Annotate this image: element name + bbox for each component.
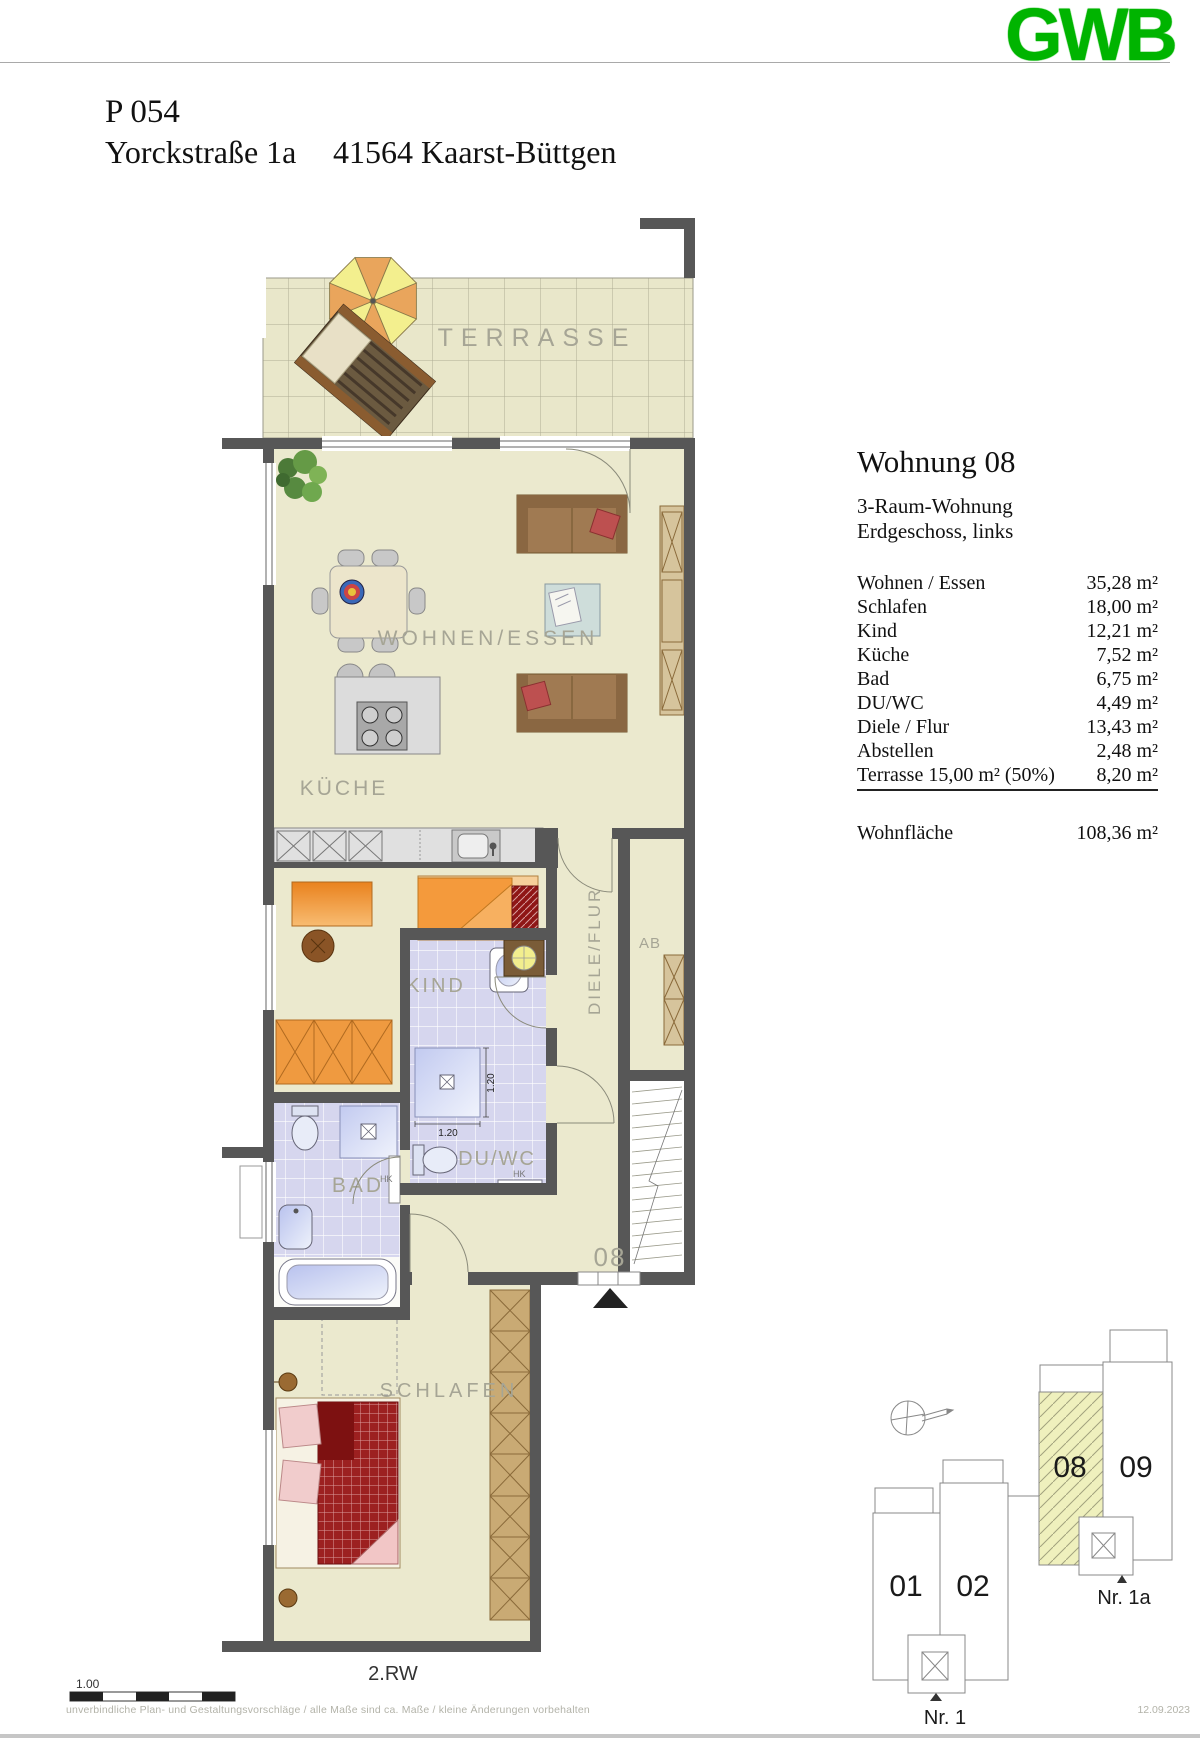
room-label: Diele / Flur	[857, 715, 949, 739]
room-area: 12,21 m²	[1086, 619, 1158, 643]
room-area: 35,28 m²	[1086, 571, 1158, 595]
shower-wc-label: DU/WC	[458, 1148, 536, 1170]
pillow-icon	[279, 1404, 321, 1448]
living-label: WOHNEN/ESSEN	[378, 627, 599, 650]
door-gap	[546, 1066, 557, 1123]
hallway-label: DIELE/FLUR	[585, 887, 604, 1015]
total-area: 108,36 m²	[1076, 822, 1158, 845]
lamp-icon	[279, 1373, 297, 1391]
kitchen-counter	[274, 828, 543, 864]
bottom-divider	[0, 1734, 1200, 1738]
table-row: Wohnen / Essen35,28 m²	[857, 571, 1158, 595]
door-gap	[412, 1272, 468, 1285]
room-label: Küche	[857, 643, 909, 667]
entry-number-label: 08	[594, 1242, 627, 1272]
project-code: P 054	[105, 94, 180, 131]
storage-cabinet	[664, 955, 684, 1045]
sofa-bottom	[517, 674, 627, 732]
table-row: Diele / Flur13,43 m²	[857, 715, 1158, 739]
table-row: Bad6,75 m²	[857, 667, 1158, 691]
shower-width-dim: 1.20	[438, 1128, 458, 1139]
wc-radiator-label: HK	[513, 1169, 526, 1179]
room-area: 6,75 m²	[1096, 667, 1158, 691]
street-address: Yorckstraße 1a	[105, 134, 296, 171]
total-area-row: Wohnfläche 108,36 m²	[857, 822, 1158, 845]
header-divider	[0, 62, 1170, 63]
footer-disclaimer: unverbindliche Plan- und Gestaltungsvors…	[66, 1704, 590, 1716]
door-gap	[546, 975, 557, 1028]
floorplan-drawing: TERRASSE BAD HK 1.2	[0, 0, 1200, 1742]
pillow-icon	[279, 1460, 321, 1504]
bath-radiator-label: HK	[380, 1174, 393, 1184]
apartment-type: 3-Raum-Wohnung	[857, 494, 1013, 519]
table-row: Schlafen18,00 m²	[857, 595, 1158, 619]
total-label: Wohnfläche	[857, 822, 953, 845]
kitchen-label: KÜCHE	[300, 777, 389, 800]
child-label: KIND	[406, 975, 466, 997]
room-label: Terrasse 15,00 m² (50%)	[857, 763, 1055, 789]
drainage-label: 2.RW	[368, 1663, 418, 1685]
storage-label: AB	[639, 935, 661, 952]
apartment-subtitle: 3-Raum-Wohnung Erdgeschoss, links	[857, 494, 1013, 544]
desk-icon	[292, 882, 372, 926]
shower-depth-dim: 1.20	[486, 1073, 497, 1093]
table-row: Kind12,21 m²	[857, 619, 1158, 643]
door-gap	[400, 1150, 410, 1205]
kitchen-island	[335, 664, 440, 754]
child-wardrobe	[276, 1020, 392, 1084]
room-label: Wohnen / Essen	[857, 571, 985, 595]
table-row: Abstellen2,48 m²	[857, 739, 1158, 763]
table-row-terrace: Terrasse 15,00 m² (50%)8,20 m²	[857, 763, 1158, 791]
room-area: 2,48 m²	[1096, 739, 1158, 763]
room-label: Bad	[857, 667, 889, 691]
bedroom-label: SCHLAFEN	[380, 1380, 519, 1402]
room-area: 8,20 m²	[1096, 763, 1158, 789]
apartment-title: Wohnung 08	[857, 444, 1016, 480]
room-area: 18,00 m²	[1086, 595, 1158, 619]
site-plan: 01 02 08 09 Nr. 1a Nr. 1	[873, 1330, 1172, 1729]
room-label: Kind	[857, 619, 897, 643]
building-09-label: 09	[1119, 1451, 1152, 1484]
room-label: Schlafen	[857, 595, 927, 619]
room-label: DU/WC	[857, 691, 924, 715]
terrace-notch	[256, 276, 266, 338]
sofa-top	[517, 495, 627, 553]
floor-location: Erdgeschoss, links	[857, 519, 1013, 544]
table-row: Küche7,52 m²	[857, 643, 1158, 667]
vestibule-floor	[400, 1195, 618, 1272]
bath-label: BAD	[332, 1174, 384, 1197]
city-address: 41564 Kaarst-Büttgen	[333, 134, 617, 171]
bath-room: BAD HK	[274, 1103, 400, 1307]
area-table: Wohnen / Essen35,28 m² Schlafen18,00 m² …	[857, 571, 1158, 791]
table-row: DU/WC4,49 m²	[857, 691, 1158, 715]
floorplan-sheet: TERRASSE BAD HK 1.2	[0, 0, 1200, 1742]
room-area: 4,49 m²	[1096, 691, 1158, 715]
stairs	[632, 1087, 682, 1264]
room-area: 13,43 m²	[1086, 715, 1158, 739]
sideboard	[660, 506, 684, 715]
scale-value: 1.00	[76, 1677, 100, 1691]
room-area: 7,52 m²	[1096, 643, 1158, 667]
entry-arrow-icon	[593, 1288, 628, 1308]
terrace-area: TERRASSE	[256, 258, 693, 440]
building-08-label: 08	[1053, 1451, 1086, 1484]
lamp-icon	[279, 1589, 297, 1607]
compass-icon	[891, 1401, 953, 1435]
entrance-1a-label: Nr. 1a	[1097, 1587, 1151, 1609]
terrace-label: TERRASSE	[438, 324, 637, 352]
building-01-label: 01	[889, 1570, 922, 1603]
gwb-logo: GWB	[1005, 0, 1174, 77]
entrance-1-label: Nr. 1	[924, 1707, 966, 1729]
window-sill	[240, 1166, 262, 1238]
scale-bar: 1.00	[70, 1677, 235, 1701]
wardrobe	[490, 1290, 530, 1620]
door-gap	[558, 828, 612, 839]
room-label: Abstellen	[857, 739, 934, 763]
footer-date: 12.09.2023	[1137, 1704, 1190, 1716]
building-02-label: 02	[956, 1570, 989, 1603]
